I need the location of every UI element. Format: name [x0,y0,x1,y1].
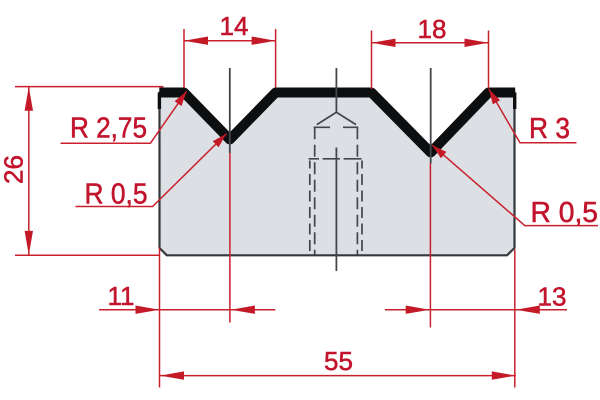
svg-text:R 2,75: R 2,75 [70,113,147,145]
svg-text:14: 14 [220,11,249,41]
svg-text:R 3: R 3 [529,113,570,145]
svg-text:11: 11 [108,281,135,311]
svg-text:26: 26 [0,155,29,184]
svg-text:55: 55 [324,346,353,376]
svg-text:18: 18 [418,14,447,44]
svg-text:R 0,5: R 0,5 [85,179,148,211]
svg-text:R 0,5: R 0,5 [531,197,599,229]
svg-text:13: 13 [538,282,567,312]
